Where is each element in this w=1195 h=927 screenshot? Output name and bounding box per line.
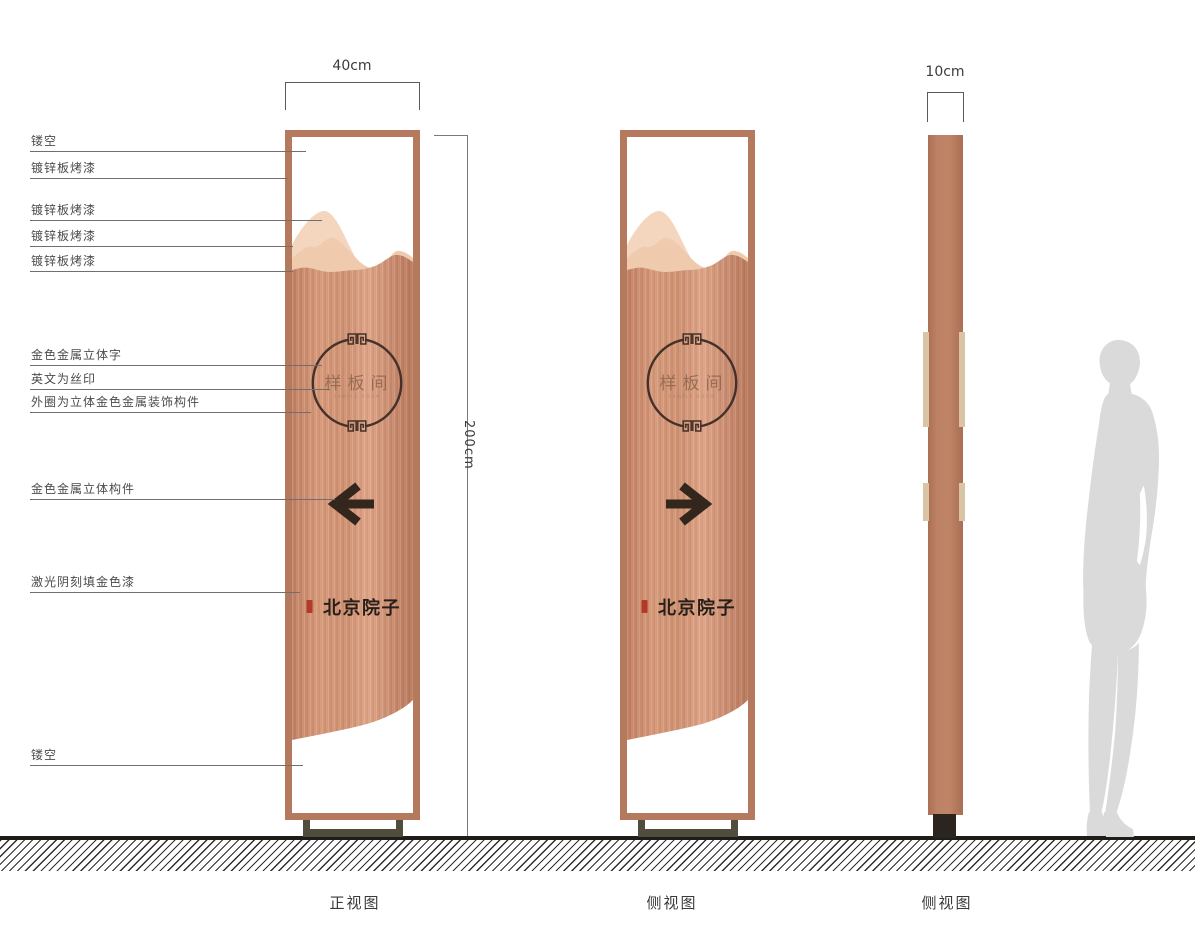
callout-gold-ring-ornament: 外圈为立体金色金属装饰构件	[30, 395, 311, 413]
sign-face-art: 样板间 SAMPLE ROOM 北京院子	[292, 137, 413, 813]
gold-ring-profile-right	[959, 332, 965, 427]
dimension-height-label: 200cm	[461, 420, 476, 470]
callout-leader-line	[30, 246, 293, 247]
seal-stamp	[307, 600, 313, 613]
dimension-side-width-bracket	[927, 92, 964, 122]
side-view-base	[933, 814, 956, 838]
room-name-text: 样板间	[325, 374, 394, 394]
sign-back-view: 样板间 SAMPLE ROOM 北京院子	[620, 130, 755, 820]
callout-label: 镀锌板烤漆	[31, 229, 293, 243]
base-post-left	[638, 820, 645, 829]
callout-leader-line	[30, 592, 300, 593]
silhouette-head	[1100, 340, 1140, 385]
callout-label: 金色金属立体字	[31, 348, 322, 362]
signage-design-drawing: 40cm 10cm 200cm 样板间	[0, 0, 1195, 927]
callout-leader-line	[30, 365, 322, 366]
callout-leader-line	[30, 271, 293, 272]
sign-face-art: 样板间 SAMPLE ROOM 北京院子	[627, 137, 748, 813]
dimension-height-tick	[434, 135, 467, 136]
silhouette-hip	[1083, 579, 1146, 653]
silhouette-right-foot	[1104, 812, 1134, 837]
caption-side-view-2: 侧视图	[897, 892, 997, 913]
callout-laser-engraving: 激光阴刻填金色漆	[30, 575, 300, 593]
brand-calligraphy-text: 北京院子	[323, 597, 401, 619]
callout-english-silkscreen: 英文为丝印	[30, 372, 330, 390]
base-bar	[303, 829, 403, 837]
ground-line	[0, 836, 1195, 840]
gold-arrow-profile-left	[923, 483, 929, 521]
callout-gold-3d-arrow: 金色金属立体构件	[30, 482, 335, 500]
callout-leader-line	[30, 178, 288, 179]
callout-label: 英文为丝印	[31, 372, 330, 386]
callout-paint-body: 镀锌板烤漆	[30, 254, 293, 272]
callout-hollow-top: 镂空	[30, 134, 306, 152]
base-post-right	[396, 820, 403, 829]
gold-ring-profile-left	[923, 332, 929, 427]
sign-front-view: 样板间 SAMPLE ROOM 北京院子	[285, 130, 420, 820]
ground-hatch	[0, 840, 1195, 871]
caption-front-view: 正视图	[305, 892, 405, 913]
sign-side-profile	[928, 135, 963, 815]
callout-hollow-bottom: 镂空	[30, 748, 303, 766]
callout-label: 镀锌板烤漆	[31, 203, 322, 217]
human-scale-silhouette	[1040, 336, 1180, 839]
callout-paint-frame: 镀锌板烤漆	[30, 161, 288, 179]
base-post-left	[303, 820, 310, 829]
gold-arrow-profile-right	[959, 483, 965, 521]
callout-leader-line	[30, 499, 335, 500]
brand-calligraphy-text: 北京院子	[658, 597, 736, 619]
room-name-english-text: SAMPLE ROOM	[334, 394, 381, 400]
caption-side-view-1: 侧视图	[622, 892, 722, 913]
callout-leader-line	[30, 151, 306, 152]
dimension-front-width-label: 40cm	[322, 58, 382, 74]
sign-body-brush-texture	[627, 255, 748, 740]
callout-label: 镂空	[31, 748, 303, 762]
callout-label: 镂空	[31, 134, 306, 148]
callout-leader-line	[30, 389, 330, 390]
seal-stamp	[642, 600, 648, 613]
callout-label: 外圈为立体金色金属装饰构件	[31, 395, 311, 409]
dimension-height-line	[467, 135, 468, 836]
base-bar	[638, 829, 738, 837]
callout-label: 镀锌板烤漆	[31, 254, 293, 268]
callout-leader-line	[30, 765, 303, 766]
room-name-english-text: SAMPLE ROOM	[669, 394, 716, 400]
callout-label: 金色金属立体构件	[31, 482, 335, 496]
dimension-side-width-label: 10cm	[915, 64, 975, 80]
callout-paint-mountain-back: 镀锌板烤漆	[30, 203, 322, 221]
callout-paint-mountain-mid: 镀锌板烤漆	[30, 229, 293, 247]
room-name-text: 样板间	[660, 374, 729, 394]
callout-label: 激光阴刻填金色漆	[31, 575, 300, 589]
base-post-right	[731, 820, 738, 829]
callout-gold-3d-text: 金色金属立体字	[30, 348, 322, 366]
dimension-front-width-bracket	[285, 82, 420, 110]
callout-leader-line	[30, 220, 322, 221]
callout-label: 镀锌板烤漆	[31, 161, 288, 175]
callout-leader-line	[30, 412, 311, 413]
